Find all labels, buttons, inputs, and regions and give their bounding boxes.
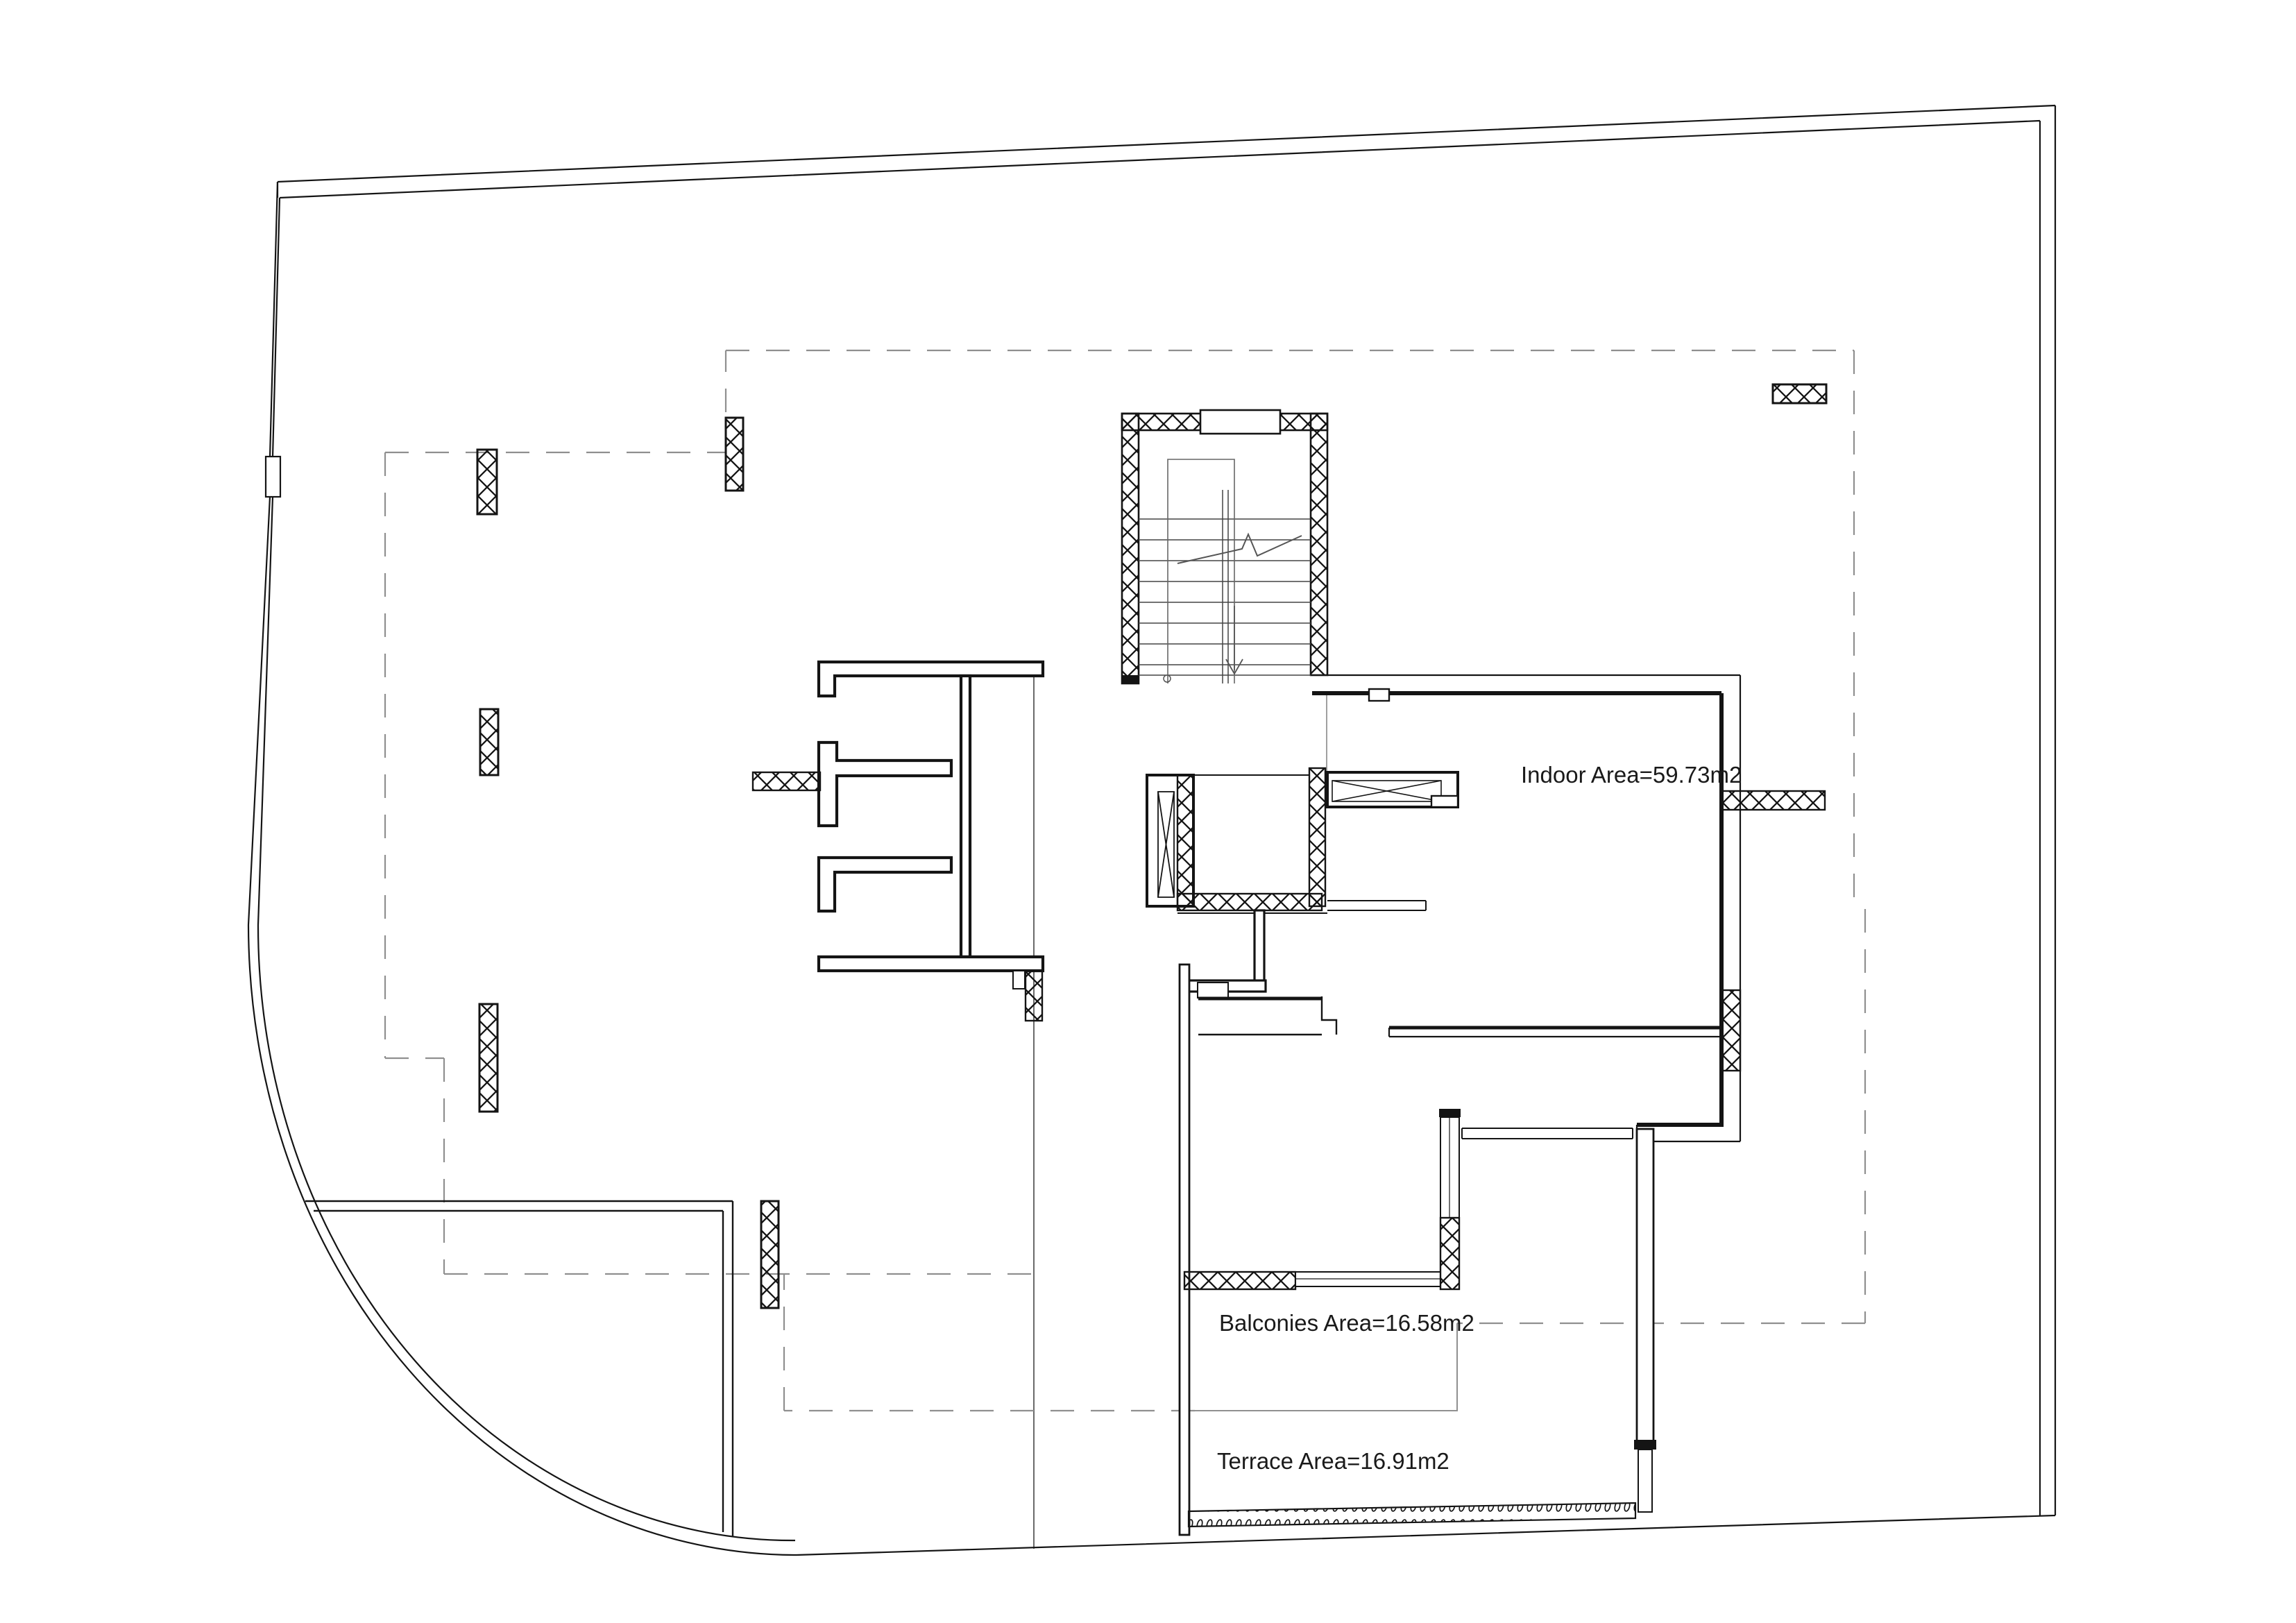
- corner-enclosure: [305, 1201, 733, 1536]
- vestibule-step: [1198, 983, 1228, 998]
- unit-right-wall-hatch: [1721, 990, 1740, 1071]
- balconies-area-label: Balconies Area=16.58m2: [1219, 1310, 1474, 1336]
- room-middle-wall-1: [819, 742, 951, 826]
- corner-enclosure-inner: [314, 1211, 723, 1532]
- unit-exterior-stub-hatch: [1722, 791, 1825, 810]
- balcony-terrace-wall: [1637, 1129, 1653, 1441]
- balcony-left-wall: [1180, 965, 1189, 1535]
- unit-top-wall-thin: [1327, 675, 1740, 1141]
- dashed-terrace-outline: [784, 1274, 1195, 1411]
- stair-wall-cap: [1122, 675, 1139, 683]
- terrace-right-wall-lower: [1638, 1450, 1652, 1512]
- room-spine-wall: [961, 676, 970, 957]
- column: [1773, 384, 1826, 403]
- column: [480, 709, 498, 775]
- unit-top-wall-thick: [1312, 693, 1721, 1125]
- indoor-area-label: Indoor Area=59.73m2: [1521, 762, 1742, 788]
- balcony-right-cap: [1439, 1109, 1461, 1117]
- terrace-parapet-hatch-band: [1189, 1503, 1635, 1527]
- elevator-shaft-hatch: [1177, 775, 1193, 906]
- stair-break-line: [1177, 534, 1302, 563]
- balcony-bottom-window: [1295, 1272, 1440, 1286]
- cross-wall-hatch: [753, 772, 820, 790]
- stair-top-opening: [1200, 410, 1280, 434]
- floor-plan-sheet: Indoor Area=59.73m2 Balconies Area=16.58…: [0, 0, 2296, 1623]
- room-top-wall: [819, 662, 1043, 696]
- balcony-terrace-wall-cap: [1634, 1440, 1656, 1450]
- interior-room-walls: [753, 662, 1043, 1021]
- room-middle-wall-2: [819, 858, 951, 911]
- balcony-right-hatch: [1440, 1218, 1459, 1289]
- terrace-outline-gray: [1195, 1323, 1457, 1411]
- balcony-bottom-hatch: [1184, 1272, 1295, 1289]
- vestibule-wall-vertical: [1255, 910, 1264, 983]
- stair-void-outline: [1168, 459, 1234, 683]
- boundary-stub: [266, 457, 280, 497]
- room-bottom-hatch-stub: [1026, 971, 1042, 1021]
- column: [479, 1004, 498, 1112]
- lobby-wall-right-hatch: [1309, 768, 1325, 906]
- room-bottom-notch: [1013, 971, 1025, 989]
- balcony-top-wall: [1198, 996, 1336, 1035]
- area-labels: Indoor Area=59.73m2 Balconies Area=16.58…: [1217, 762, 1742, 1474]
- stair-start-marker: [1164, 675, 1171, 682]
- room-bottom-wall: [819, 957, 1043, 971]
- balcony-railing-window: [1462, 1128, 1633, 1139]
- vent-shaft-symbol: [1327, 772, 1458, 807]
- stair-wall-right: [1311, 414, 1327, 675]
- terrace-area-label: Terrace Area=16.91m2: [1217, 1448, 1449, 1474]
- stair-wall-left: [1122, 414, 1139, 683]
- vestibule-walls: [1188, 910, 1266, 998]
- corner-enclosure-outer: [305, 1201, 733, 1536]
- floor-plan-drawing: Indoor Area=59.73m2 Balconies Area=16.58…: [0, 0, 2296, 1623]
- column: [761, 1201, 779, 1308]
- column: [477, 450, 497, 514]
- unit-wall-notch: [1369, 689, 1389, 701]
- column: [726, 418, 743, 491]
- stair-treads: [1139, 519, 1311, 675]
- elevator-car-symbol: [1158, 792, 1174, 897]
- lobby-wall-bottom-hatch: [1177, 894, 1322, 910]
- apartment-walls: [1312, 675, 1825, 1141]
- staircase: [1122, 410, 1327, 683]
